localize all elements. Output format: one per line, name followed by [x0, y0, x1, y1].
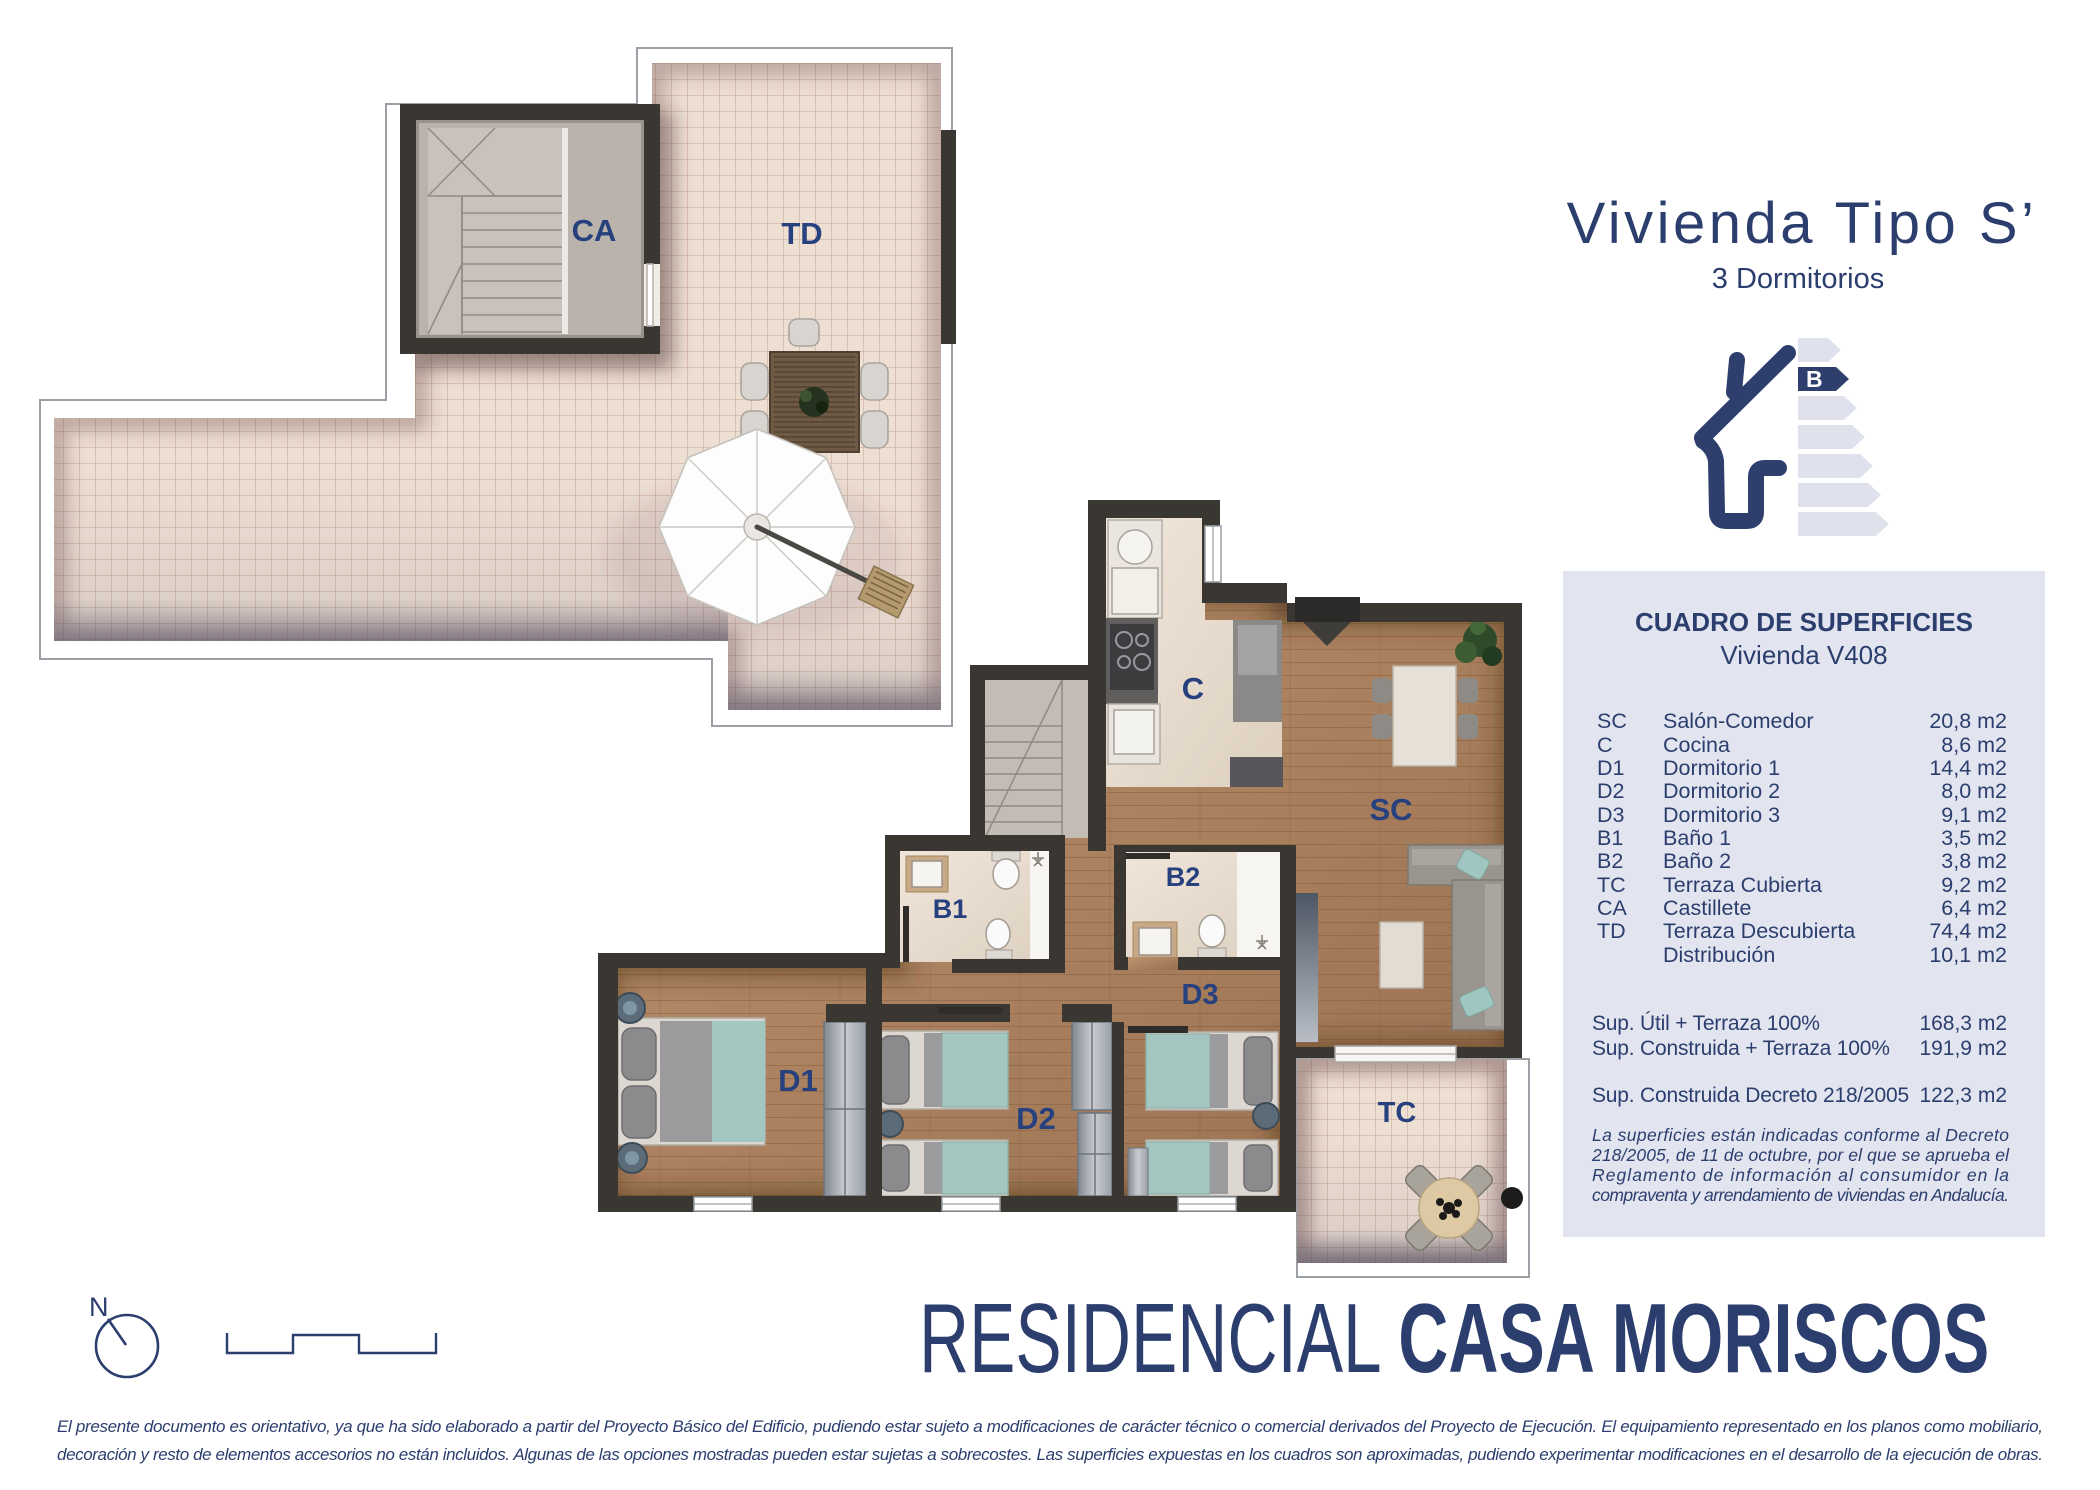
svg-text:TD: TD: [1597, 919, 1626, 943]
svg-text:Terraza Cubierta: Terraza Cubierta: [1663, 873, 1822, 897]
svg-text:D1: D1: [778, 1063, 818, 1098]
svg-text:TC: TC: [1597, 873, 1626, 897]
svg-text:6,4 m2: 6,4 m2: [1941, 896, 2007, 920]
svg-text:C: C: [1182, 671, 1204, 706]
svg-text:Castillete: Castillete: [1663, 896, 1751, 920]
svg-text:D3: D3: [1181, 979, 1218, 1011]
svg-text:B: B: [1806, 366, 1823, 392]
svg-text:Cocina: Cocina: [1663, 733, 1730, 757]
svg-text:Baño 2: Baño 2: [1663, 849, 1731, 873]
svg-text:La superficies están indicadas: La superficies están indicadas conforme …: [1592, 1125, 2009, 1145]
svg-text:9,1 m2: 9,1 m2: [1941, 803, 2007, 827]
svg-text:218/2005, de 11 de octubre, po: 218/2005, de 11 de octubre, por el que s…: [1591, 1145, 2010, 1165]
svg-text:CUADRO DE SUPERFICIES: CUADRO DE SUPERFICIES: [1635, 607, 1973, 637]
svg-text:168,3 m2: 168,3 m2: [1919, 1012, 2007, 1035]
svg-text:B1: B1: [933, 894, 968, 924]
svg-text:decoración y resto de elemento: decoración y resto de elementos accesori…: [57, 1445, 2043, 1464]
svg-text:Salón-Comedor: Salón-Comedor: [1663, 709, 1814, 733]
svg-text:191,9 m2: 191,9 m2: [1919, 1037, 2007, 1060]
svg-text:Sup. Construida Decreto 218/20: Sup. Construida Decreto 218/2005: [1592, 1084, 1909, 1107]
svg-text:El presente documento es orien: El presente documento es orientativo, ya…: [57, 1417, 2043, 1436]
svg-text:N: N: [89, 1292, 109, 1322]
svg-text:122,3 m2: 122,3 m2: [1919, 1084, 2007, 1107]
svg-text:Terraza Descubierta: Terraza Descubierta: [1663, 919, 1855, 943]
svg-text:B2: B2: [1597, 849, 1623, 873]
svg-text:10,1 m2: 10,1 m2: [1929, 943, 2007, 967]
svg-text:8,0 m2: 8,0 m2: [1941, 779, 2007, 803]
svg-text:SC: SC: [1369, 792, 1412, 827]
svg-text:Vivienda V408: Vivienda V408: [1720, 640, 1887, 670]
svg-text:Baño 1: Baño 1: [1663, 826, 1731, 850]
svg-text:Distribución: Distribución: [1663, 943, 1775, 967]
svg-text:CA: CA: [1597, 896, 1628, 920]
svg-text:Vivienda Tipo S’: Vivienda Tipo S’: [1567, 191, 2038, 256]
svg-text:Sup. Útil + Terraza 100%: Sup. Útil + Terraza 100%: [1592, 1012, 1820, 1035]
svg-text:3,5 m2: 3,5 m2: [1941, 826, 2007, 850]
svg-text:Dormitorio 2: Dormitorio 2: [1663, 779, 1780, 803]
svg-text:3,8 m2: 3,8 m2: [1941, 849, 2007, 873]
svg-text:3 Dormitorios: 3 Dormitorios: [1712, 263, 1884, 295]
svg-text:B1: B1: [1597, 826, 1623, 850]
svg-text:CA: CA: [572, 213, 617, 248]
svg-text:Reglamento de información al c: Reglamento de información al consumidor …: [1592, 1165, 2009, 1185]
svg-text:SC: SC: [1597, 709, 1627, 733]
svg-text:TD: TD: [781, 216, 822, 251]
svg-text:9,2 m2: 9,2 m2: [1941, 873, 2007, 897]
svg-text:D3: D3: [1597, 803, 1625, 827]
svg-text:20,8 m2: 20,8 m2: [1929, 709, 2007, 733]
svg-text:14,4 m2: 14,4 m2: [1929, 756, 2007, 780]
svg-text:D1: D1: [1597, 756, 1624, 780]
svg-text:B2: B2: [1166, 862, 1201, 892]
svg-text:D2: D2: [1016, 1101, 1056, 1136]
svg-text:Dormitorio 1: Dormitorio 1: [1663, 756, 1780, 780]
svg-text:Sup. Construida + Terraza 100%: Sup. Construida + Terraza 100%: [1592, 1037, 1890, 1060]
svg-text:Dormitorio 3: Dormitorio 3: [1663, 803, 1780, 827]
svg-text:TC: TC: [1378, 1097, 1417, 1129]
svg-text:D2: D2: [1597, 779, 1624, 803]
svg-text:RESIDENCIAL CASA MORISCOS: RESIDENCIAL CASA MORISCOS: [919, 1283, 1989, 1393]
svg-text:74,4 m2: 74,4 m2: [1929, 919, 2007, 943]
svg-text:compraventa y arrendamiento de: compraventa y arrendamiento de viviendas…: [1592, 1185, 2009, 1205]
svg-text:C: C: [1597, 733, 1613, 757]
svg-text:8,6 m2: 8,6 m2: [1941, 733, 2007, 757]
